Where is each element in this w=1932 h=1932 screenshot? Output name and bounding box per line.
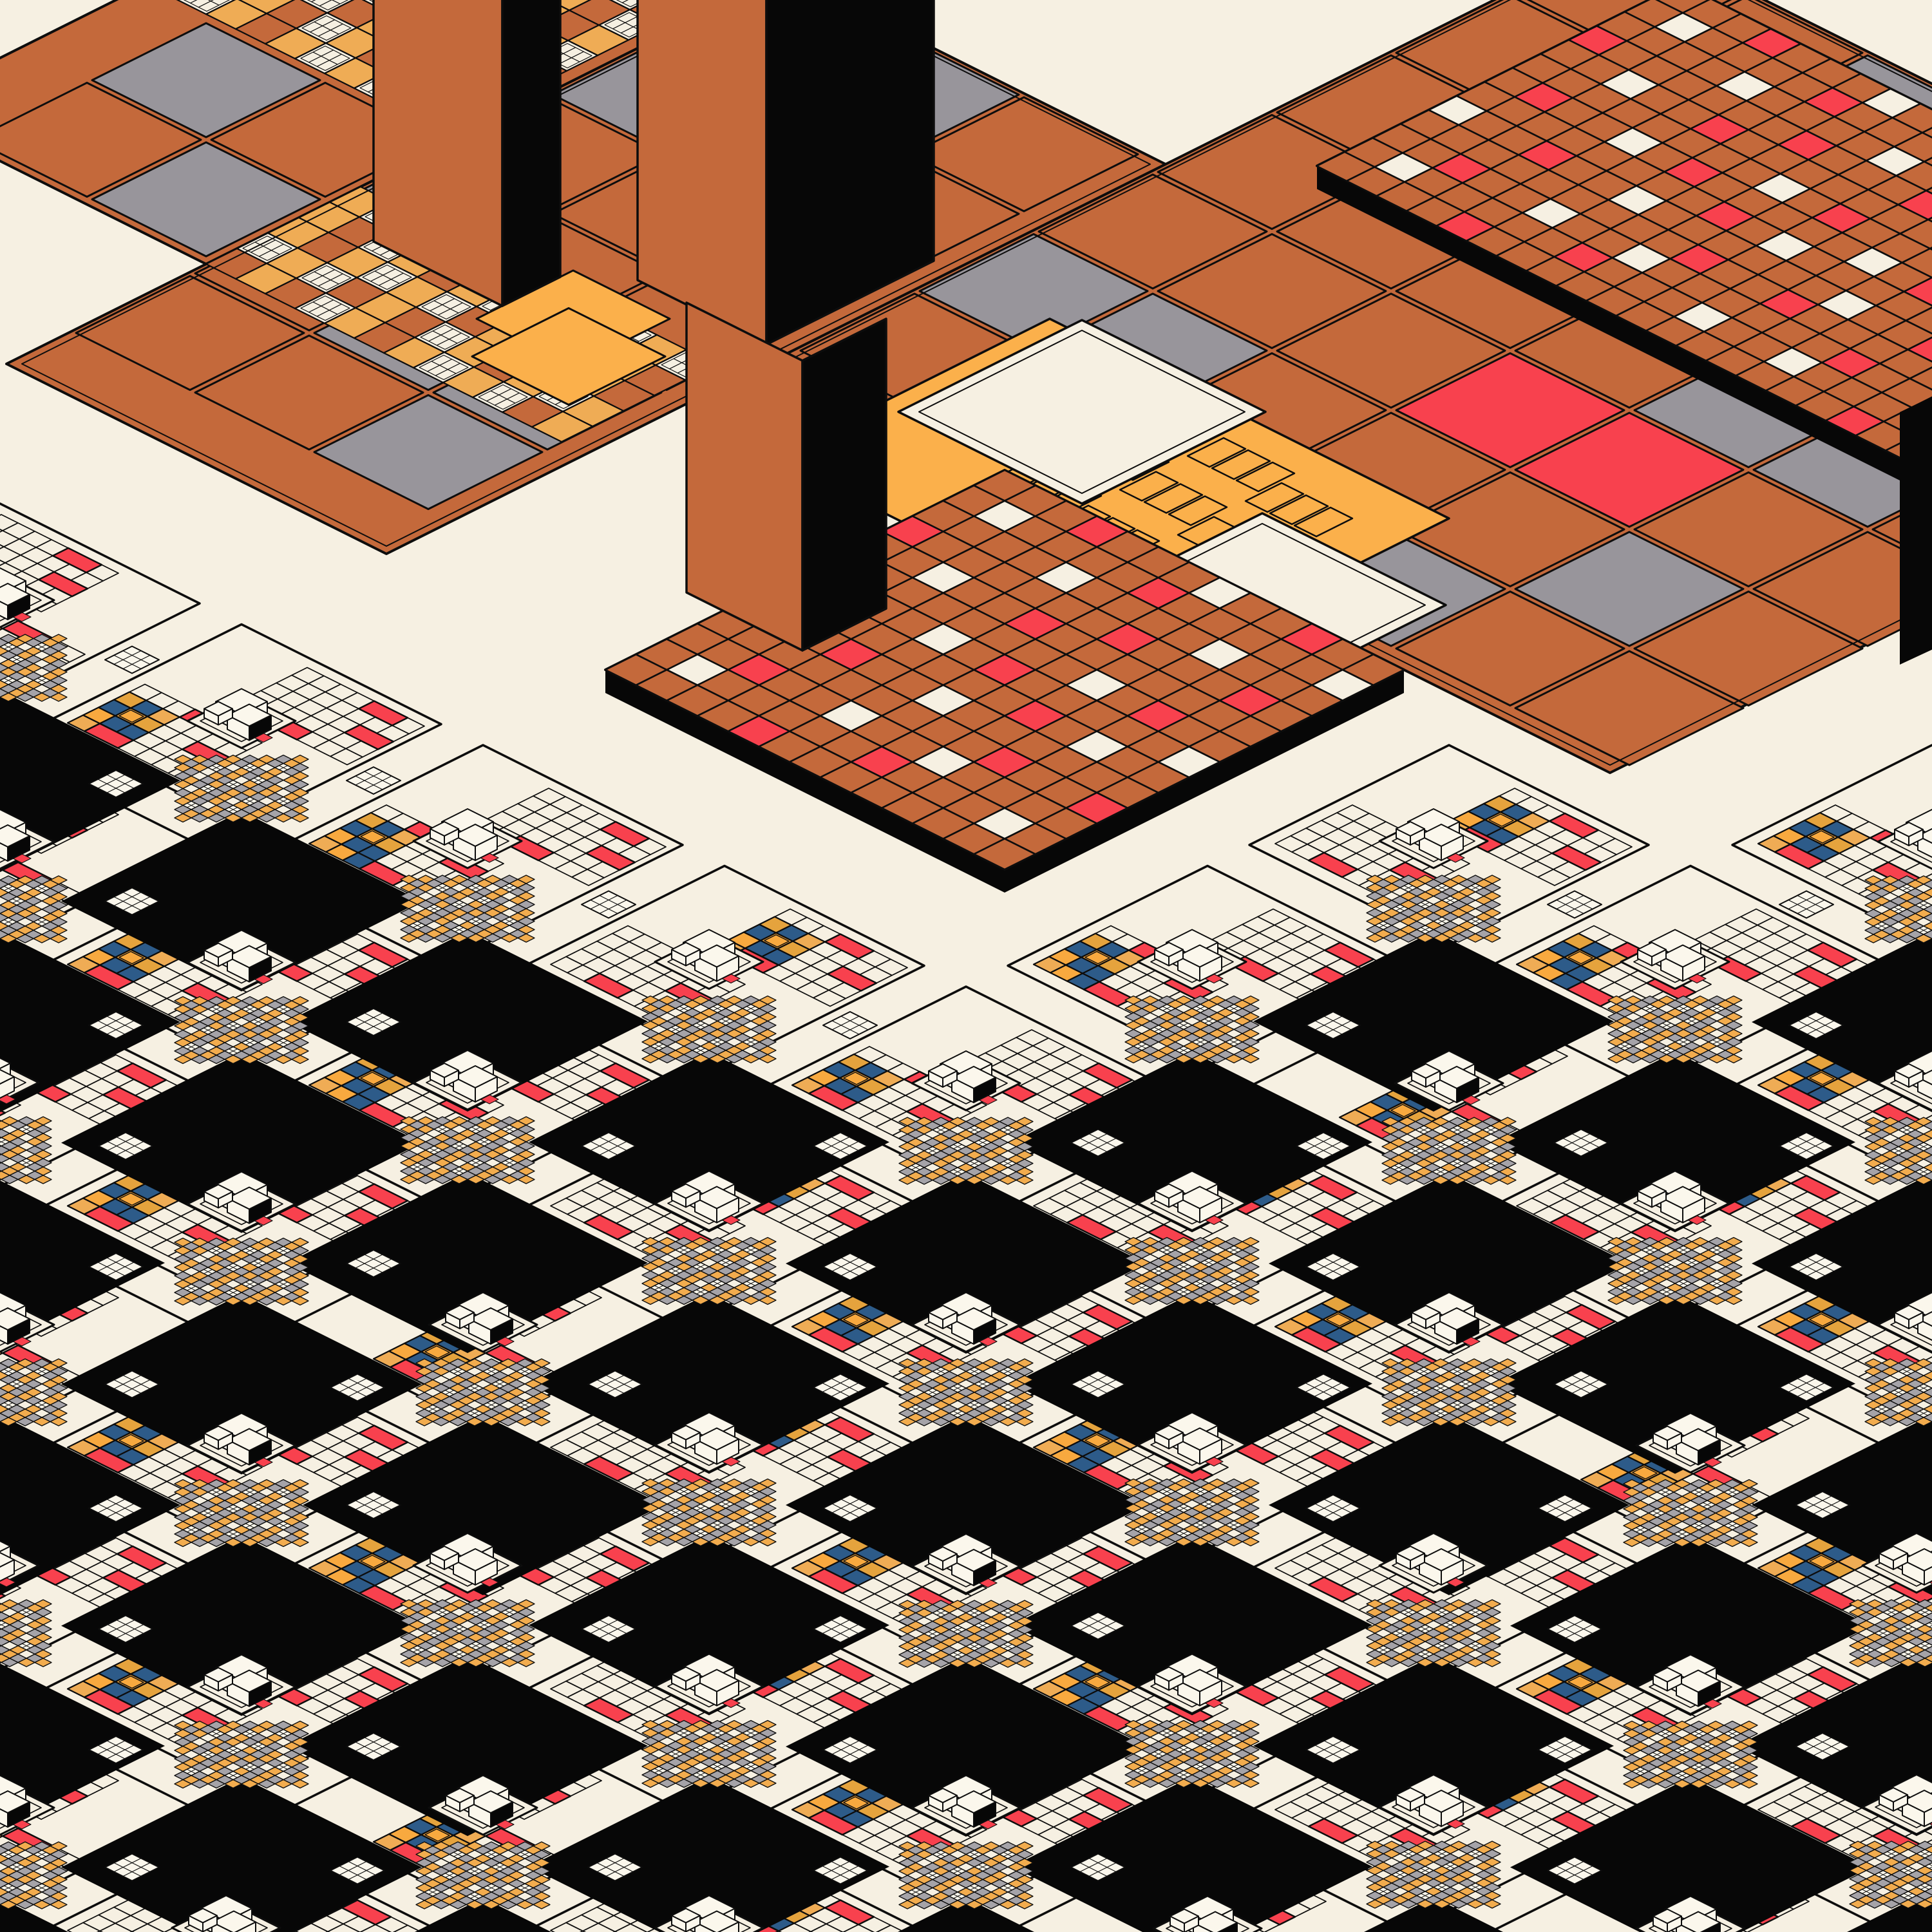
- right-edge-base: [1900, 394, 1932, 665]
- tower-mid: [687, 303, 886, 650]
- isometric-artwork-canvas: [0, 0, 1932, 1932]
- artwork-frame: [0, 0, 1932, 1932]
